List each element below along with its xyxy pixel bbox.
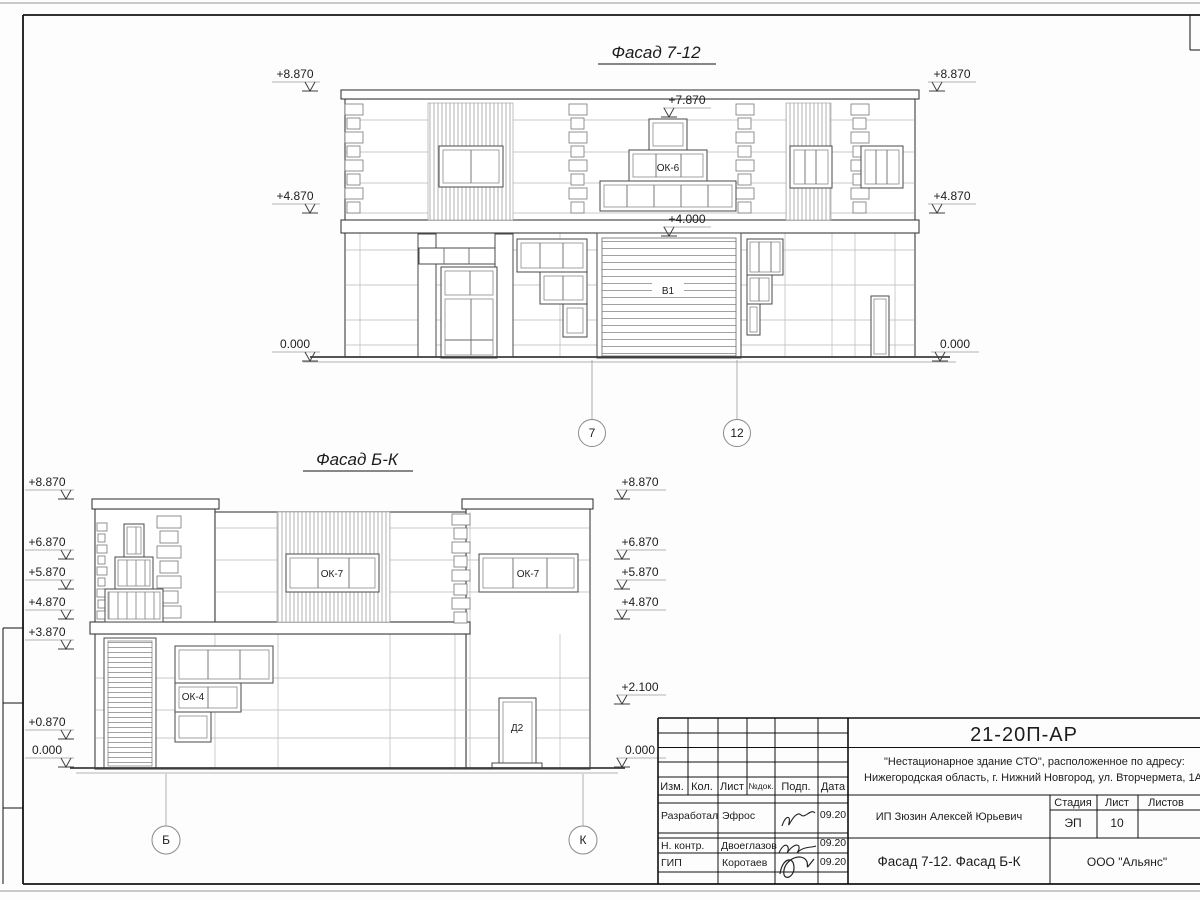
window-3pane [861,146,903,188]
axis-7: 7 [579,360,606,447]
title-block: Изм. Кол. Лист №док. Подп. Дата Разработ… [658,718,1200,884]
svg-text:+6.870: +6.870 [28,535,65,549]
elevation-mark: +4.870 [614,595,666,619]
facade-7-12-title: Фасад 7-12 [611,43,701,62]
facade-7-12: Фасад 7-12 [272,43,979,447]
col-data: Дата [821,781,846,793]
svg-text:+8.870: +8.870 [28,475,65,489]
elevation-mark: +5.870 [614,565,666,589]
date-developer: 09.20 [820,809,846,821]
svg-text:+4.870: +4.870 [621,595,658,609]
project-line1: "Нестационарное здание СТО", расположенн… [884,756,1185,768]
pilaster [495,234,513,357]
svg-text:+8.870: +8.870 [933,67,970,81]
svg-text:+5.870: +5.870 [621,565,658,579]
svg-text:0.000: 0.000 [940,337,970,351]
elevation-mark: 0.000 [931,337,979,361]
window-label: ОК-4 [182,692,205,703]
window-3pane [790,146,832,188]
col-podp: Подп. [781,781,810,793]
elevation-mark: +8.870 [272,67,320,91]
elevation-mark: +0.870 [25,715,74,739]
sign-band [419,248,495,264]
role-gip: ГИП [661,857,682,869]
facade-b-k-title: Фасад Б-К [316,450,399,469]
col-kol: Кол. [691,781,713,793]
elevation-mark: +4.870 [272,189,320,213]
svg-text:+2.100: +2.100 [621,680,658,694]
svg-text:+4.000: +4.000 [668,212,705,226]
window-label: ОК-7 [321,569,344,580]
axis-12: 12 [724,360,751,447]
roller-shutter [104,638,156,768]
frame-corner-box [1190,15,1200,50]
elevation-mark: 0.000 [25,743,74,767]
name-gip: Коротаев [722,857,768,869]
elevation-mark: +8.870 [25,475,74,499]
date-ncontrol: 09.20 [820,837,846,849]
svg-text:К: К [580,833,587,847]
garage-door-v1: В1 [597,233,741,358]
name-developer: Эфрос [722,810,755,822]
svg-text:+8.870: +8.870 [276,67,313,81]
signature [779,845,816,853]
elevation-mark: +6.870 [614,535,666,559]
svg-text:+8.870: +8.870 [621,475,658,489]
side-door [871,296,889,357]
svg-text:12: 12 [730,426,744,440]
name-ncontrol: Двоеглазов [721,840,777,852]
elevation-mark: +8.870 [928,67,976,91]
door-label: Д2 [511,723,524,734]
sheets-label: Листов [1148,797,1184,809]
role-developer: Разработал [661,810,718,822]
col-izm: Изм. [660,781,684,793]
door-label: В1 [662,286,675,297]
svg-text:7: 7 [589,426,596,440]
window-2pane [439,146,503,187]
svg-text:+7.870: +7.870 [668,93,705,107]
window-label: ОК-6 [657,163,680,174]
col-ndok: №док. [749,781,774,791]
architectural-drawing: Фасад 7-12 [0,0,1200,900]
sheet-title: Фасад 7-12. Фасад Б-К [877,854,1020,869]
window-ok7-left: ОК-7 [286,554,379,592]
elevation-mark: +5.870 [25,565,74,589]
svg-text:+3.870: +3.870 [28,625,65,639]
svg-text:0.000: 0.000 [32,743,62,757]
doc-number: 21-20П-АР [970,724,1078,746]
signature [782,812,815,826]
client: ИП Зюзин Алексей Юрьевич [876,811,1023,823]
elevation-mark: +8.870 [614,475,666,499]
elevation-mark: +3.870 [25,625,74,649]
elevation-mark: +4.870 [928,189,976,213]
sheet-number: 10 [1110,816,1124,830]
col-list: Лист [720,781,744,793]
axis-k: К [569,774,597,854]
date-gip: 09.20 [820,856,846,868]
svg-text:+4.870: +4.870 [276,189,313,203]
facade-b-k: Фасад Б-К ОК-7 [25,450,666,854]
stage-value: ЭП [1064,816,1081,830]
elevation-mark: +4.870 [25,595,74,619]
svg-text:+6.870: +6.870 [621,535,658,549]
svg-text:+0.870: +0.870 [28,715,65,729]
stage-label: Стадия [1054,797,1092,809]
project-line2: Нижегородская область, г. Нижний Новгоро… [864,772,1200,784]
door-d2: Д2 [492,698,542,769]
role-ncontrol: Н. контр. [661,840,704,852]
sheet-label: Лист [1105,797,1129,809]
svg-text:+4.870: +4.870 [933,189,970,203]
company: ООО "Альянс" [1087,855,1167,869]
elevation-mark: +6.870 [25,535,74,559]
sheet-page: Фасад 7-12 [0,0,1200,900]
signature [780,857,814,877]
window-ok7-right: ОК-7 [479,554,578,592]
elevation-mark: +2.100 [614,680,666,704]
svg-text:Б: Б [162,833,170,847]
svg-text:0.000: 0.000 [280,337,310,351]
axis-b: Б [152,774,180,854]
svg-text:0.000: 0.000 [625,743,655,757]
svg-text:+5.870: +5.870 [28,565,65,579]
window-label: ОК-7 [517,569,540,580]
frame-margin-boxes [3,628,23,884]
entrance-door [441,267,497,358]
svg-text:+4.870: +4.870 [28,595,65,609]
